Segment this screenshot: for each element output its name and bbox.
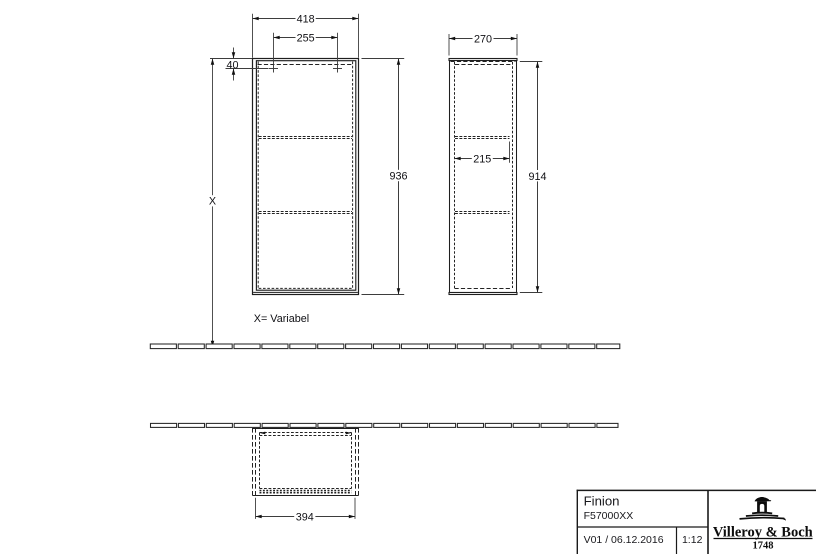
svg-text:1748: 1748 (753, 540, 774, 551)
svg-text:40: 40 (226, 59, 238, 71)
svg-text:X= Variabel: X= Variabel (254, 313, 309, 325)
svg-text:914: 914 (528, 171, 546, 183)
svg-text:418: 418 (297, 13, 315, 25)
svg-text:936: 936 (389, 171, 407, 183)
svg-text:255: 255 (297, 32, 315, 44)
svg-text:F57000XX: F57000XX (584, 510, 634, 522)
svg-text:270: 270 (474, 33, 492, 45)
svg-text:394: 394 (296, 511, 314, 523)
svg-text:Finion: Finion (584, 494, 620, 509)
svg-text:215: 215 (473, 153, 491, 165)
svg-text:X: X (209, 196, 216, 208)
svg-text:V01 / 06.12.2016: V01 / 06.12.2016 (584, 534, 664, 546)
svg-text:1:12: 1:12 (682, 534, 703, 546)
